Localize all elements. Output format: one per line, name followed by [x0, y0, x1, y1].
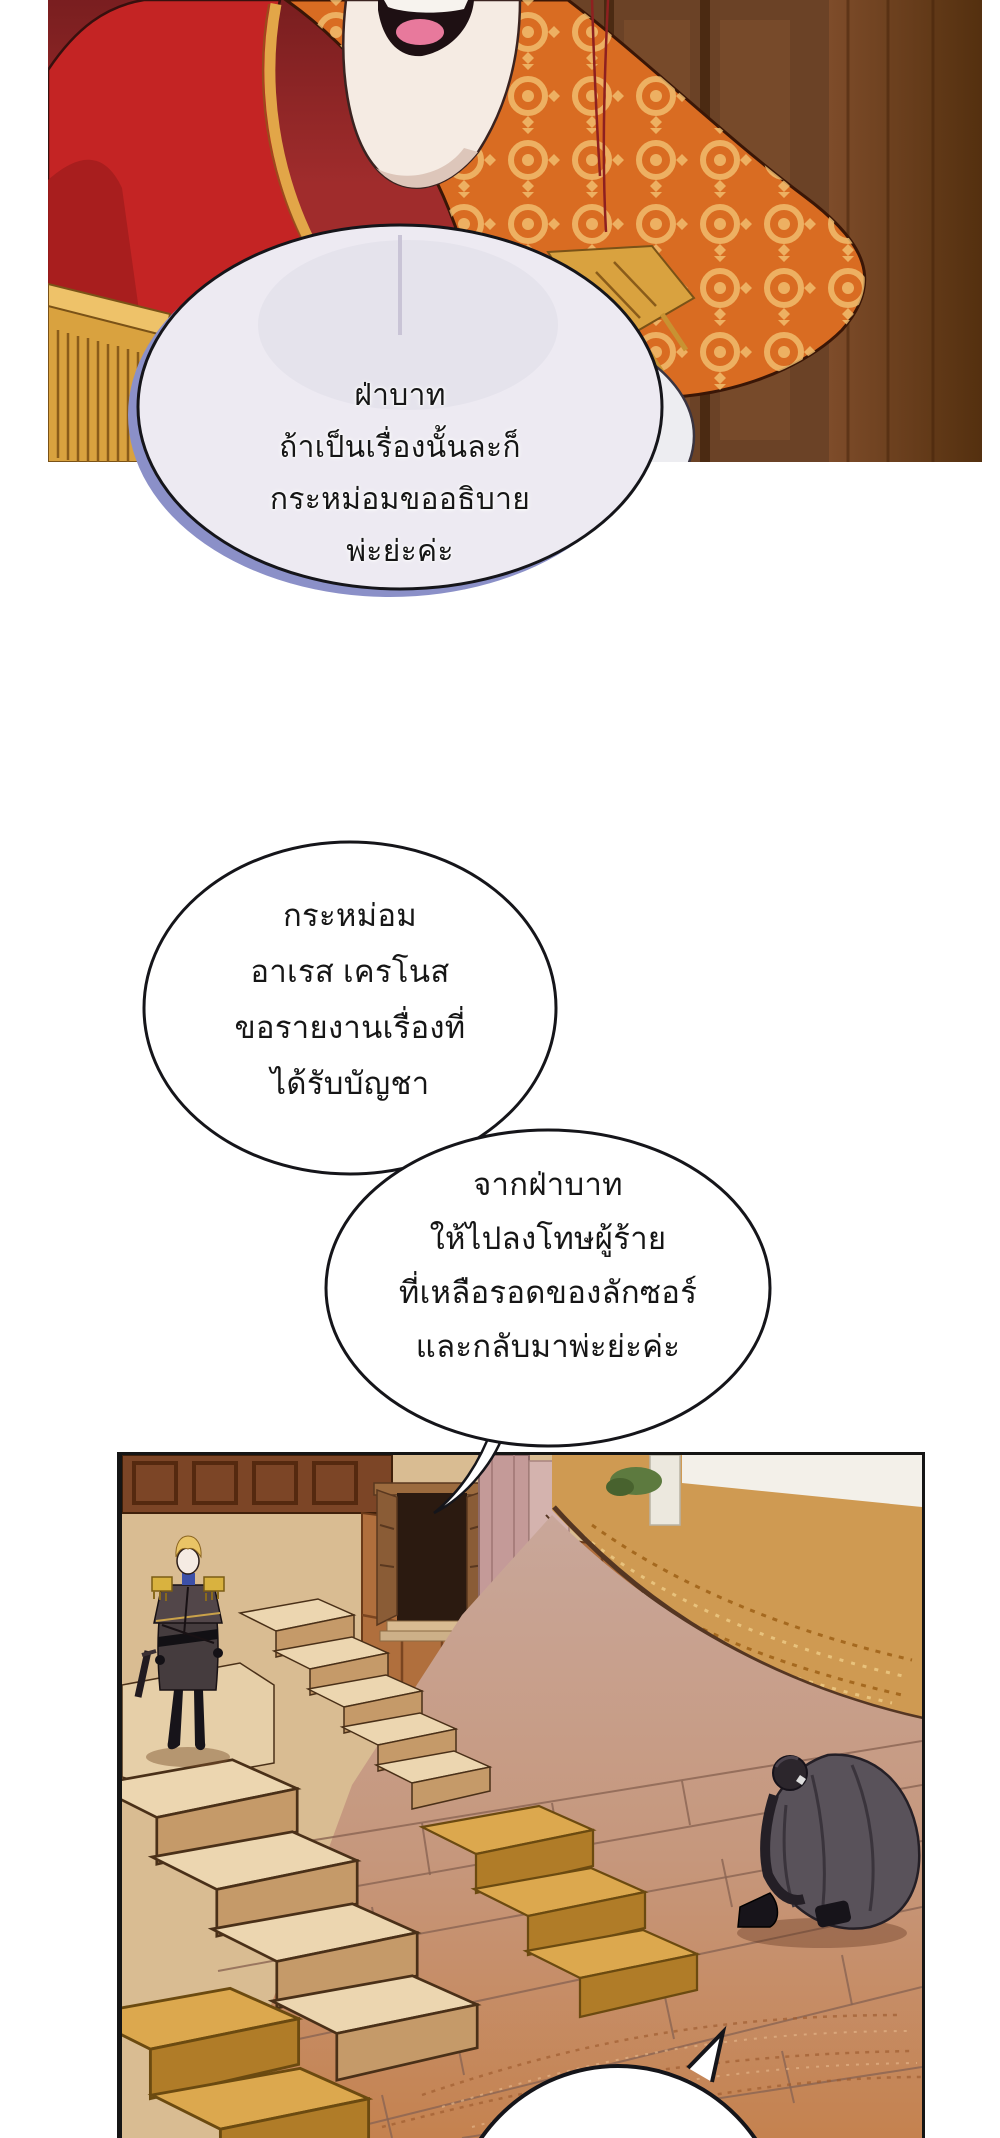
knight-face: [177, 1548, 199, 1574]
epaulette-right: [204, 1577, 224, 1591]
door-pillar: [829, 0, 982, 462]
bubble-line: ที่เหลือรอดของลักซอร์: [338, 1266, 758, 1320]
bubble-line: กระหม่อม: [150, 888, 550, 944]
bubble-body: [450, 2066, 786, 2138]
webtoon-page: ฝ่าบาท ถ้าเป็นเรื่องนั้นละก็ กระหม่อมขออ…: [0, 0, 1000, 2138]
bubble-line: ถ้าเป็นเรื่องนั้นละก็: [180, 422, 620, 474]
bubble-line: ขอรายงานเรื่องที่: [150, 1000, 550, 1056]
knight-collar: [182, 1573, 195, 1585]
bubble-line: พ่ะย่ะค่ะ: [180, 526, 620, 578]
bubble-tail: [688, 2032, 723, 2082]
epaulette-left: [152, 1577, 172, 1591]
bubble-line: จากฝ่าบาท: [338, 1158, 758, 1212]
bubble-line: ได้รับบัญชา: [150, 1056, 550, 1112]
bubble-line: อาเรส เครโนส: [150, 944, 550, 1000]
speech-bubble-partial: [420, 2020, 820, 2138]
bubble-line: ให้ไปลงโทษผู้ร้าย: [338, 1212, 758, 1266]
bubble-line: กระหม่อมขออธิบาย: [180, 474, 620, 526]
knight-glove-right: [213, 1648, 223, 1658]
bubble-line: ฝ่าบาท: [180, 370, 620, 422]
bubble-2-text: กระหม่อม อาเรส เครโนส ขอรายงานเรื่องที่ …: [150, 888, 550, 1112]
bubble-1-text: ฝ่าบาท ถ้าเป็นเรื่องนั้นละก็ กระหม่อมขออ…: [180, 370, 620, 578]
knight-shadow: [146, 1747, 230, 1767]
knight-glove-left: [155, 1655, 165, 1665]
bubble-line: และกลับมาพ่ะย่ะค่ะ: [338, 1320, 758, 1374]
bubble-3-text: จากฝ่าบาท ให้ไปลงโทษผู้ร้าย ที่เหลือรอดข…: [338, 1158, 758, 1374]
